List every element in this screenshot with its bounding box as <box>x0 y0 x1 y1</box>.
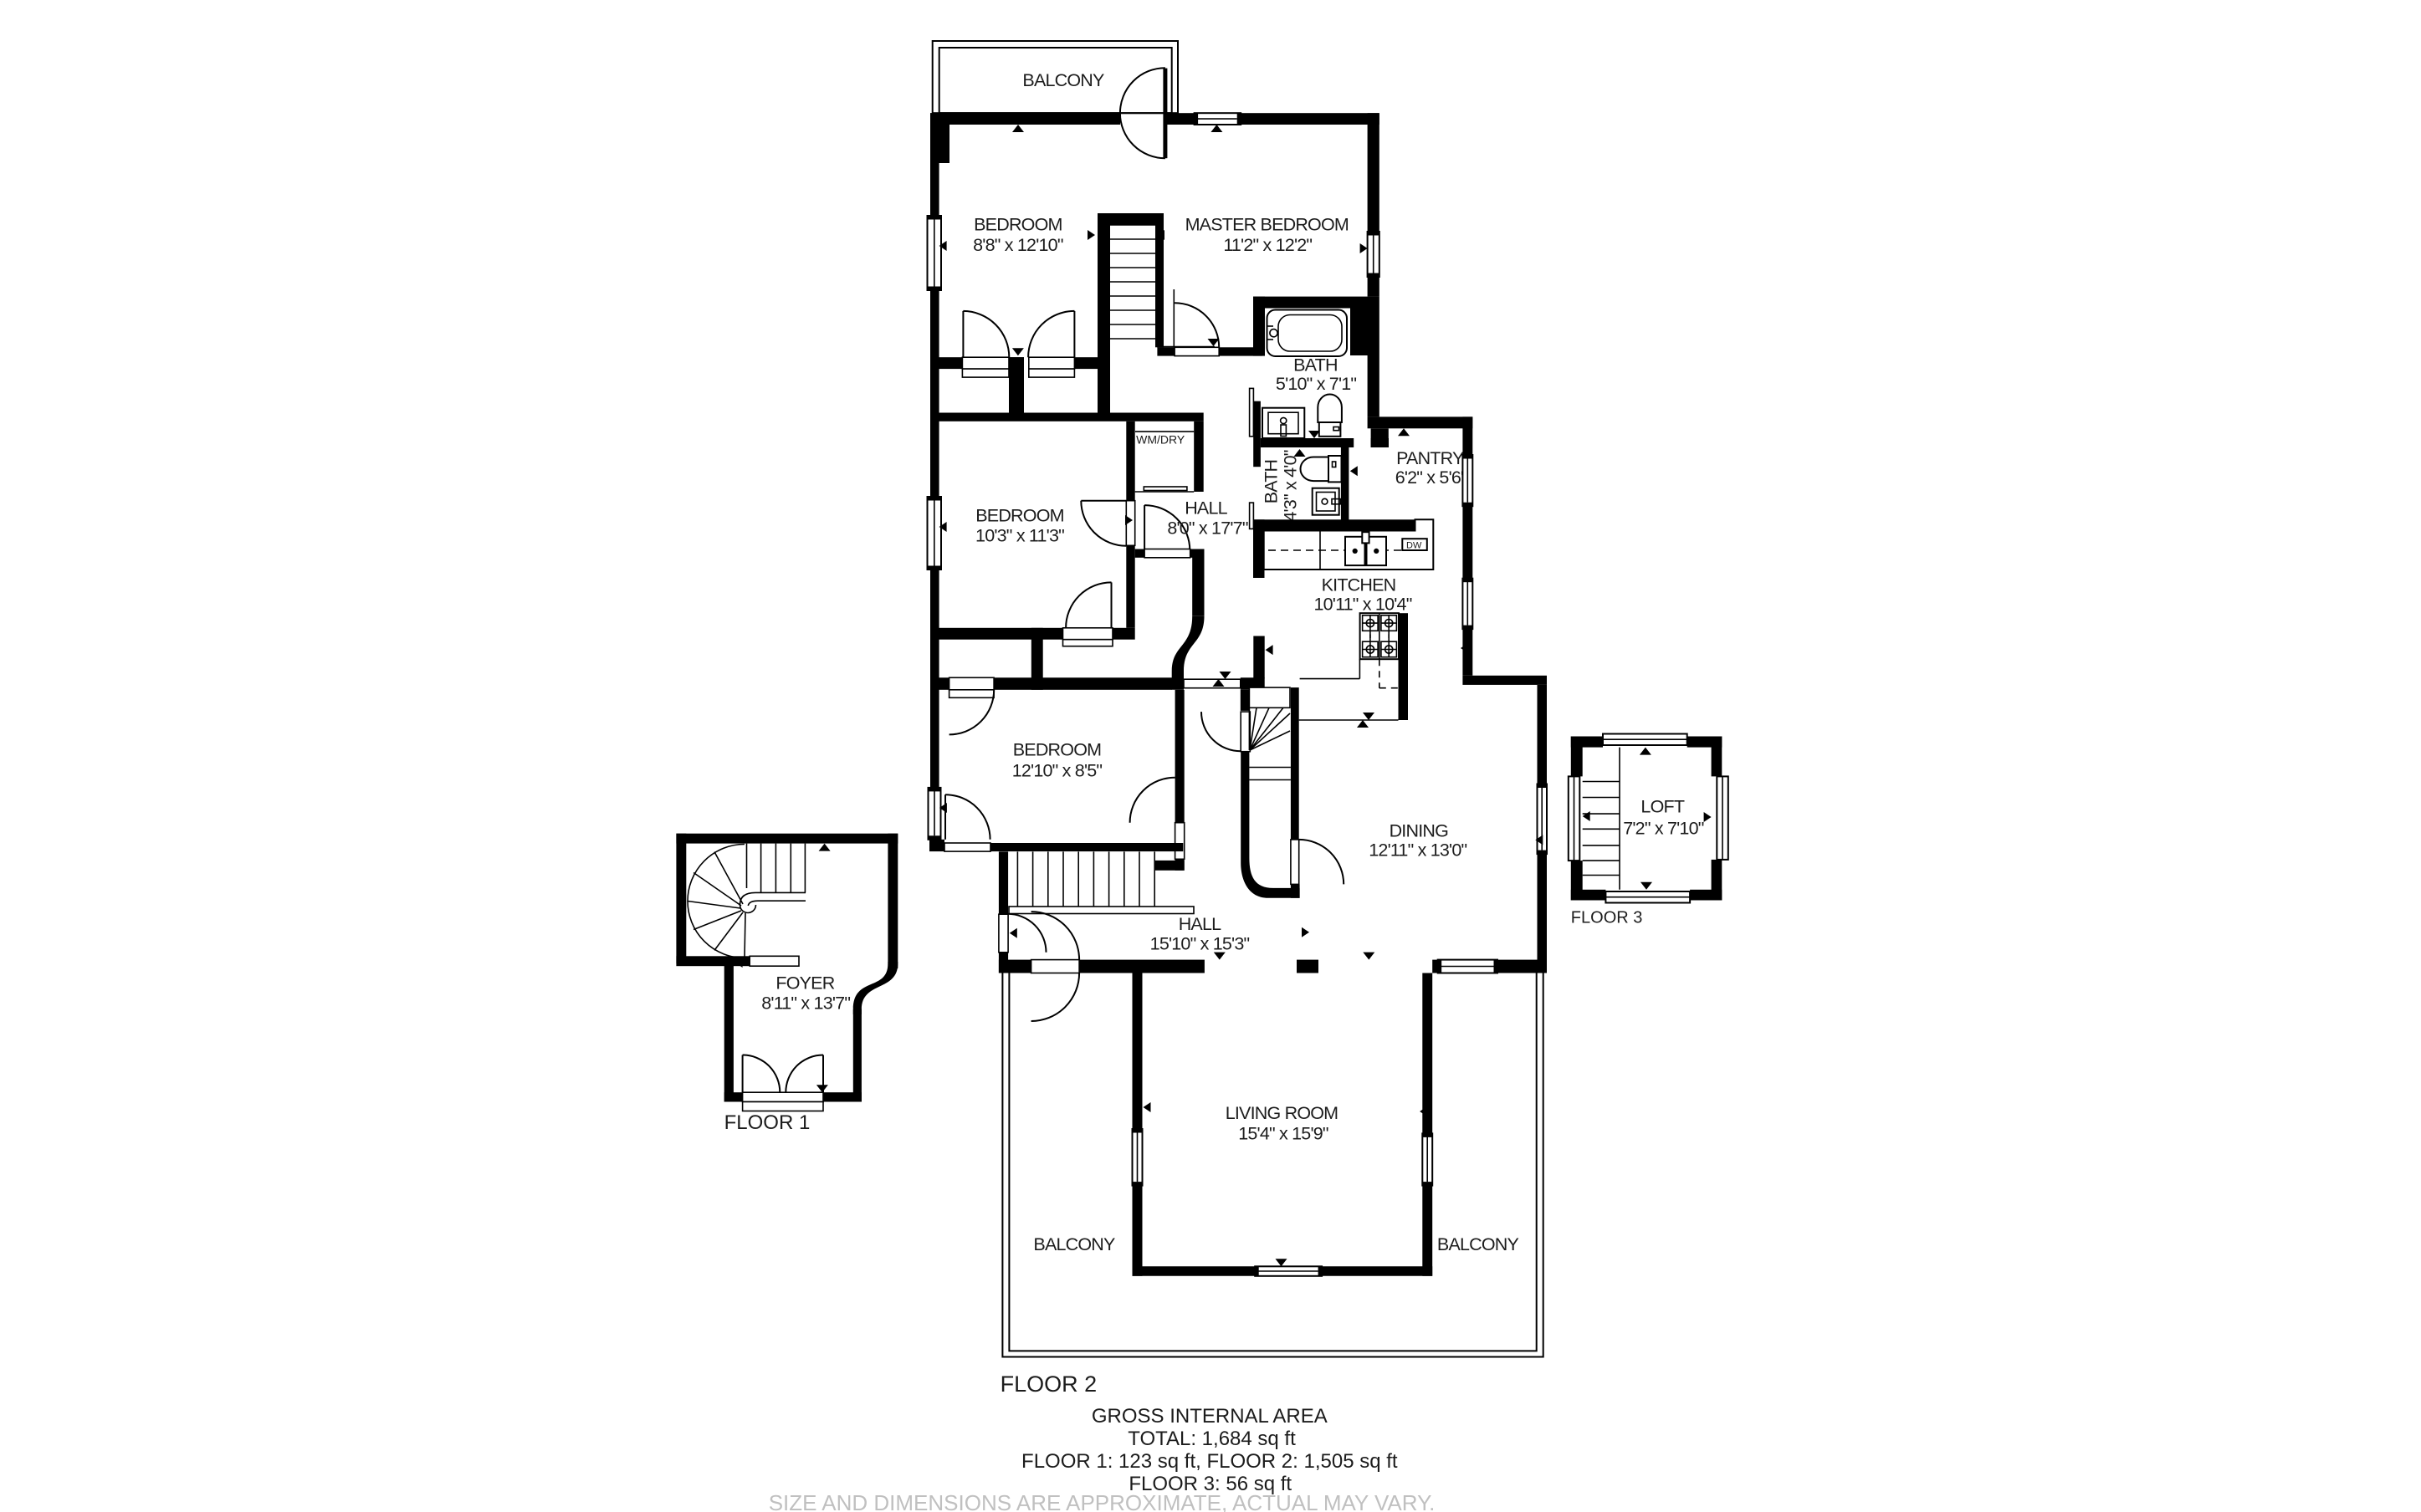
svg-text:GROSS INTERNAL AREA: GROSS INTERNAL AREA <box>1092 1405 1328 1428</box>
svg-text:6'2" x 5'6": 6'2" x 5'6" <box>1395 467 1466 488</box>
svg-text:HALL: HALL <box>1179 914 1221 934</box>
svg-text:10'11" x 10'4": 10'11" x 10'4" <box>1313 595 1411 615</box>
svg-text:12'11" x 13'0": 12'11" x 13'0" <box>1369 840 1466 861</box>
svg-text:BEDROOM: BEDROOM <box>974 215 1062 235</box>
svg-text:7'2" x 7'10": 7'2" x 7'10" <box>1623 819 1704 839</box>
svg-text:KITCHEN: KITCHEN <box>1322 575 1396 595</box>
svg-text:15'4" x 15'9": 15'4" x 15'9" <box>1238 1124 1328 1144</box>
svg-text:FLOOR 1: FLOOR 1 <box>724 1111 811 1134</box>
svg-text:PANTRY: PANTRY <box>1396 448 1464 468</box>
svg-text:BEDROOM: BEDROOM <box>1013 740 1102 760</box>
svg-text:BALCONY: BALCONY <box>1437 1234 1519 1254</box>
svg-text:MASTER BEDROOM: MASTER BEDROOM <box>1185 215 1349 235</box>
svg-text:FLOOR 3: FLOOR 3 <box>1571 909 1643 927</box>
svg-text:BATH: BATH <box>1262 460 1282 504</box>
svg-text:15'10" x 15'3": 15'10" x 15'3" <box>1150 934 1250 954</box>
svg-text:10'3" x 11'3": 10'3" x 11'3" <box>975 526 1064 546</box>
svg-text:8'8" x 12'10": 8'8" x 12'10" <box>973 235 1063 255</box>
svg-text:5'10" x 7'1": 5'10" x 7'1" <box>1276 374 1357 394</box>
svg-text:8'11" x 13'7": 8'11" x 13'7" <box>761 994 850 1014</box>
svg-text:FLOOR 2: FLOOR 2 <box>1001 1372 1098 1397</box>
svg-text:HALL: HALL <box>1185 498 1227 518</box>
svg-text:BALCONY: BALCONY <box>1022 70 1104 90</box>
svg-text:11'2" x 12'2": 11'2" x 12'2" <box>1223 235 1312 255</box>
svg-text:8'0" x 17'7": 8'0" x 17'7" <box>1167 518 1248 539</box>
svg-text:FLOOR 1: 123 sq ft, FLOOR 2: 1: FLOOR 1: 123 sq ft, FLOOR 2: 1,505 sq ft <box>1021 1450 1398 1473</box>
svg-text:SIZE AND DIMENSIONS ARE APPROX: SIZE AND DIMENSIONS ARE APPROXIMATE, ACT… <box>769 1490 1436 1512</box>
svg-text:TOTAL: 1,684 sq ft: TOTAL: 1,684 sq ft <box>1128 1428 1296 1450</box>
svg-text:4'3" x 4'0": 4'3" x 4'0" <box>1281 450 1301 521</box>
svg-text:12'10" x 8'5": 12'10" x 8'5" <box>1012 761 1103 781</box>
svg-text:LOFT: LOFT <box>1640 797 1684 817</box>
svg-text:DINING: DINING <box>1390 821 1449 841</box>
svg-text:BEDROOM: BEDROOM <box>975 506 1064 526</box>
svg-text:FOYER: FOYER <box>775 973 834 994</box>
svg-text:WM/DRY: WM/DRY <box>1136 433 1185 447</box>
svg-text:LIVING ROOM: LIVING ROOM <box>1226 1103 1338 1123</box>
svg-text:BALCONY: BALCONY <box>1033 1234 1115 1254</box>
svg-text:BATH: BATH <box>1293 355 1338 375</box>
svg-text:DW: DW <box>1406 540 1422 550</box>
